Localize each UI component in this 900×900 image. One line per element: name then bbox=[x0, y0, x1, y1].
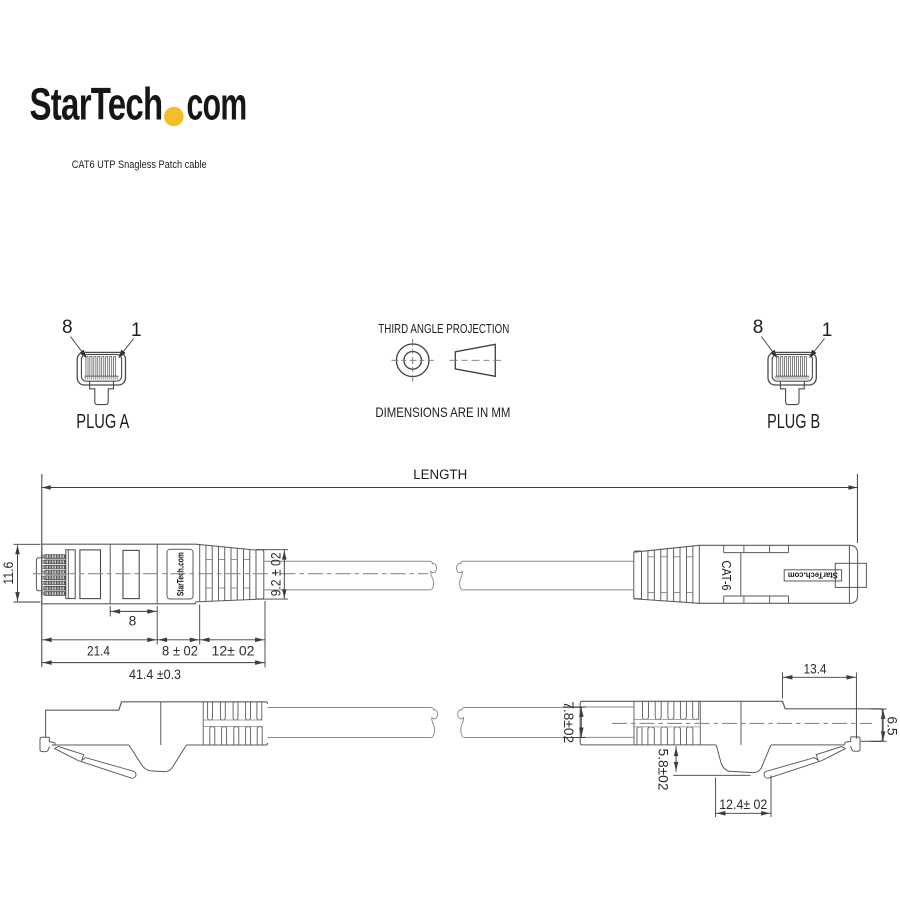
svg-text:1: 1 bbox=[131, 320, 142, 341]
svg-text:21.4: 21.4 bbox=[87, 644, 110, 659]
svg-text:11.6: 11.6 bbox=[1, 561, 16, 584]
svg-text:THIRD ANGLE PROJECTION: THIRD ANGLE PROJECTION bbox=[378, 321, 509, 336]
svg-text:LENGTH: LENGTH bbox=[413, 467, 467, 482]
svg-text:6.5: 6.5 bbox=[885, 716, 900, 736]
svg-text:PLUG B: PLUG B bbox=[767, 410, 820, 433]
svg-text:9.2 ± 02: 9.2 ± 02 bbox=[269, 552, 284, 596]
svg-text:CAT6 UTP Snagless Patch cable: CAT6 UTP Snagless Patch cable bbox=[72, 159, 207, 171]
svg-text:12.4± 02: 12.4± 02 bbox=[719, 797, 767, 812]
svg-text:com: com bbox=[187, 79, 247, 130]
svg-text:12± 02: 12± 02 bbox=[212, 644, 255, 659]
svg-text:CAT-6: CAT-6 bbox=[719, 561, 734, 591]
svg-text:PLUG A: PLUG A bbox=[76, 410, 129, 433]
svg-text:8: 8 bbox=[753, 317, 764, 338]
svg-text:StarTech: StarTech bbox=[30, 79, 163, 130]
svg-text:13.4: 13.4 bbox=[804, 662, 827, 677]
svg-text:5.8±02: 5.8±02 bbox=[656, 749, 671, 791]
svg-text:41.4 ±0.3: 41.4 ±0.3 bbox=[129, 667, 181, 682]
svg-text:StarTech.com: StarTech.com bbox=[787, 569, 837, 580]
svg-text:8: 8 bbox=[62, 317, 73, 338]
svg-text:8 ± 02: 8 ± 02 bbox=[162, 644, 198, 659]
svg-text:1: 1 bbox=[822, 320, 833, 341]
svg-text:DIMENSIONS ARE IN MM: DIMENSIONS ARE IN MM bbox=[375, 405, 510, 420]
svg-text:7.8±02: 7.8±02 bbox=[561, 701, 576, 743]
svg-text:8: 8 bbox=[129, 614, 137, 629]
